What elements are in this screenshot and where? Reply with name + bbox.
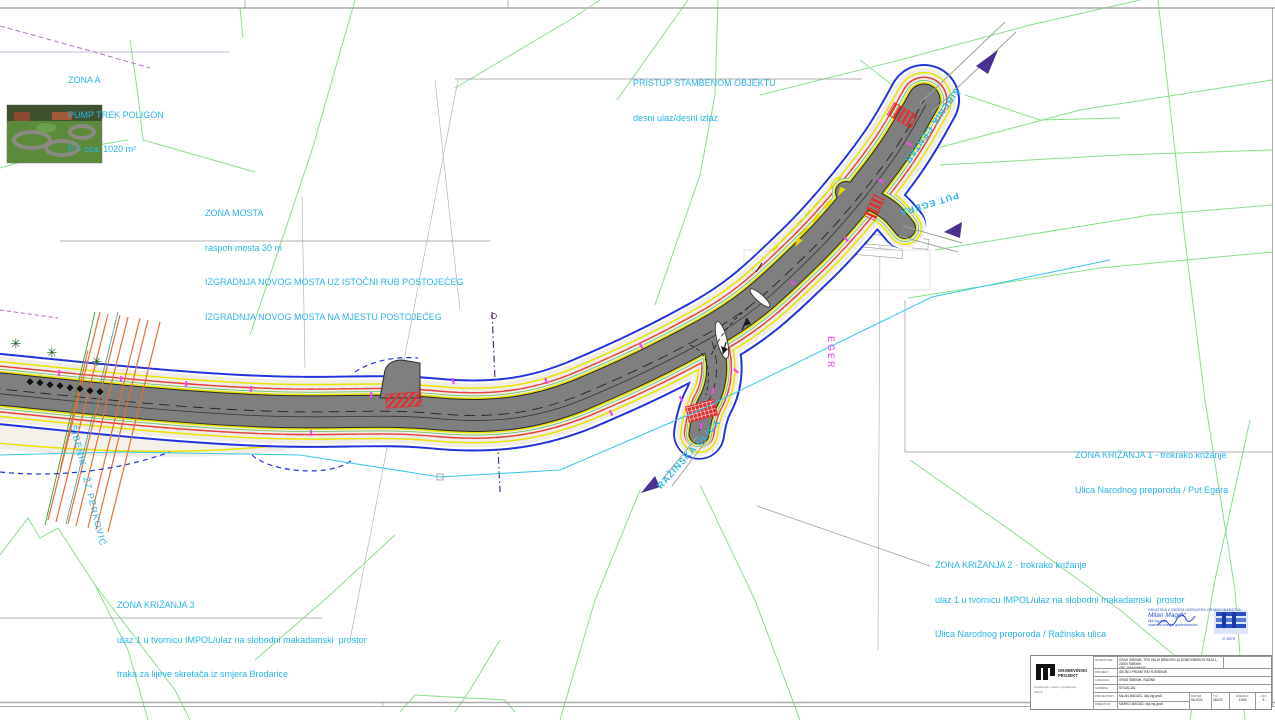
company-logo-cell: GRAĐEVINSKI PROJEKT projektiranje i nadz…	[1031, 656, 1093, 709]
annotation-pristup: PRISTUP STAMBENOM OBJEKTU desni ulaz/des…	[633, 55, 776, 136]
annotation-zona-a: ZONA A PUMP TREK POLIGON P = cca. 1020 m…	[68, 52, 164, 167]
tb-label: INVESTITOR:	[1093, 656, 1117, 668]
road-label-eger: EGER	[826, 336, 836, 370]
access-stub	[380, 360, 421, 408]
tb-meta-list: LIST: 5	[1255, 692, 1271, 709]
annotation-zk3: ZONA KRIŽANJA 3 ulaz 1 u tvornicu IMPOL/…	[117, 577, 367, 692]
tb-revision-cell	[1223, 656, 1271, 668]
stamp-number: G 5679	[1222, 636, 1235, 641]
company-logo	[1035, 662, 1057, 682]
svg-text:✳: ✳	[11, 337, 22, 352]
annotation-zk1: ZONA KRIŽANJA 1 - trokrako križanje Ulic…	[1075, 427, 1228, 508]
crosswalk-bridge	[386, 392, 422, 408]
tb-meta-td: T.D.: 261/21	[1211, 692, 1229, 709]
annotation-zona-mosta: ZONA MOSTA raspon mosta 30 m IZGRADNJA N…	[205, 185, 464, 335]
tb-value: GRAD ŠIBENIK, TRG PALIH BRANITELJA DOMOV…	[1119, 658, 1222, 666]
zona-mosta-title: ZONA MOSTA	[205, 208, 464, 220]
stamp-name: Milan Magdić	[1148, 612, 1258, 619]
arrow-sibenik-centar	[976, 50, 998, 74]
svg-text:✳: ✳	[47, 346, 58, 361]
pristup-title: PRISTUP STAMBENOM OBJEKTU	[633, 78, 776, 90]
company-name: GRAĐEVINSKI PROJEKT	[1058, 668, 1093, 678]
tb-meta-datum: DATUM: 06.2022	[1189, 692, 1211, 709]
tb-meta-mjerilo: MJERILO: 1:500	[1229, 692, 1255, 709]
zk3-title: ZONA KRIŽANJA 3	[117, 600, 367, 612]
svg-text:✳: ✳	[92, 355, 103, 370]
arrow-put-egera	[944, 222, 962, 238]
zk1-title: ZONA KRIŽANJA 1 - trokrako križanje	[1075, 450, 1228, 462]
zk2-title: ZONA KRIŽANJA 2 - trokrako križanje	[935, 560, 1185, 572]
zona-a-title: ZONA A	[68, 75, 164, 87]
drawing-sheet: { "colors": { "annotation_cyan": "#29b4e…	[0, 0, 1275, 720]
title-block: GRAĐEVINSKI PROJEKT projektiranje i nadz…	[1030, 655, 1272, 710]
engineer-stamp: HRVATSKA KOMORA INŽENJERA GRAĐEVINARSTVA…	[1148, 608, 1258, 627]
annotation-zk2: ZONA KRIŽANJA 2 - trokrako križanje ulaz…	[935, 537, 1185, 652]
